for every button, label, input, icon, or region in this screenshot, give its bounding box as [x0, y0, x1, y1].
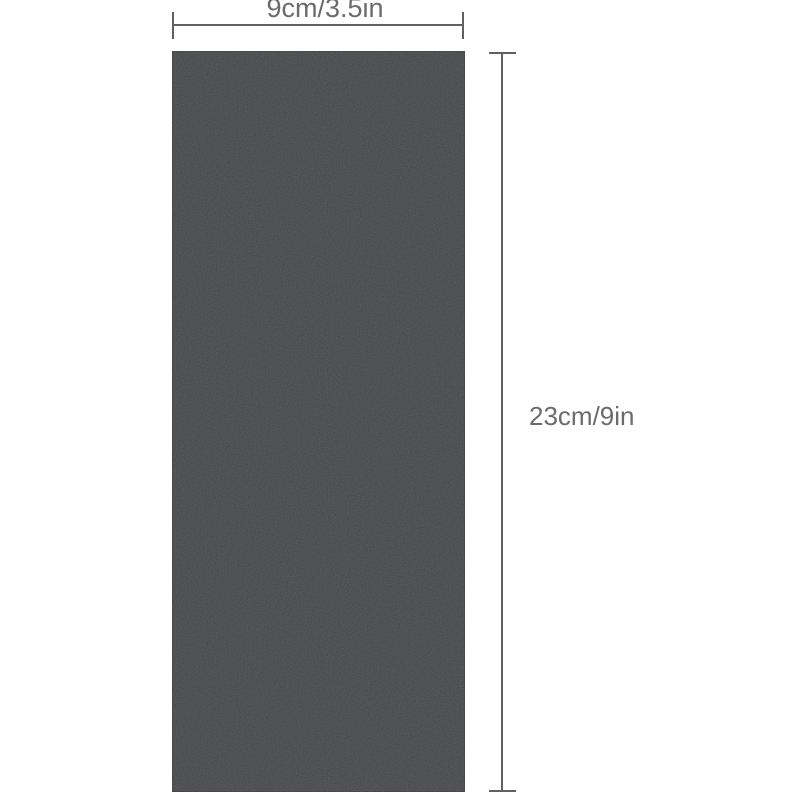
sheet [172, 51, 465, 792]
width-dimension-tick-left [172, 12, 174, 39]
height-dimension-label: 23cm/9in [529, 403, 635, 429]
product-dimension-diagram: 9cm/3.5in 23cm/9in [0, 0, 800, 800]
sheet-texture [172, 51, 465, 792]
height-dimension-line [501, 53, 503, 792]
height-dimension-tick-bottom [489, 790, 516, 792]
sheet-sparkle-layer [172, 51, 465, 792]
width-dimension-line [172, 24, 464, 26]
width-dimension-label: 9cm/3.5in [266, 0, 383, 24]
height-dimension-tick-top [489, 52, 516, 54]
width-dimension-tick-right [462, 12, 464, 39]
